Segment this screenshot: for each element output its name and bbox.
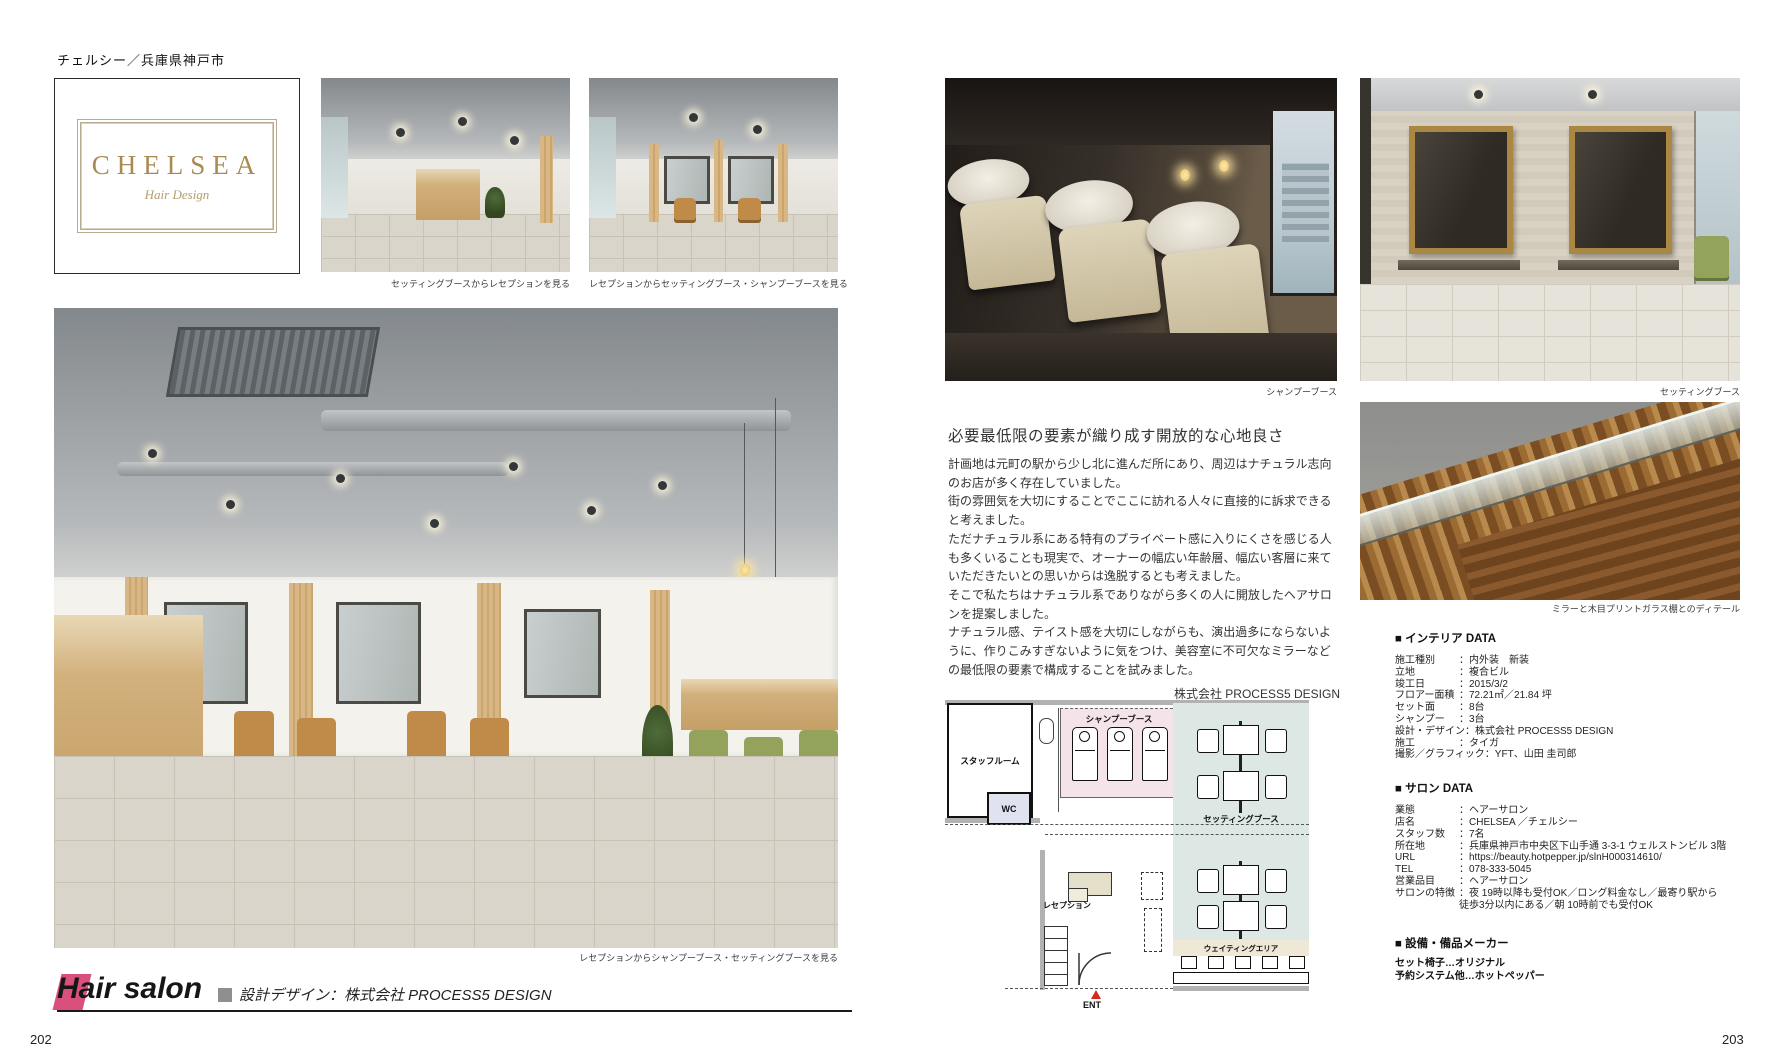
- data-row: 設計・デザイン：株式会社 PROCESS5 DESIGN: [1395, 726, 1772, 738]
- chair-headrest: [1079, 731, 1090, 742]
- plan-display-dashed: [1141, 872, 1163, 900]
- chair-seatline: [1075, 750, 1095, 751]
- plan-dashed-line: [1045, 834, 1309, 835]
- design-credit: 設計デザイン：株式会社 PROCESS5 DESIGN: [218, 984, 552, 1005]
- air-duct: [321, 410, 791, 430]
- data-row: URL：https://beauty.hotpepper.jp/slnH0003…: [1395, 852, 1772, 864]
- spotlight: [458, 117, 467, 126]
- logo-frame: CHELSEA Hair Design: [77, 119, 277, 233]
- data-column: ■ インテリア DATA 施工種別：内外装 新装 立地：複合ビル 竣工日：201…: [1395, 630, 1772, 983]
- data-label: 竣工日: [1395, 679, 1459, 691]
- data-label: シャンプー: [1395, 714, 1459, 726]
- reception-desk: [416, 169, 481, 219]
- data-value: ：CHELSEA ／チェルシー: [1459, 817, 1578, 829]
- wood-column: [714, 140, 724, 221]
- spotlight: [689, 113, 698, 122]
- plan-display-dashed: [1144, 908, 1162, 952]
- plant: [485, 187, 505, 218]
- plan-wc-label: WC: [1002, 804, 1017, 814]
- article-block: 必要最低限の要素が織り成す開放的な心地良さ 計画地は元町の駅から少し北に進んだ所…: [948, 424, 1340, 702]
- data-value: ：https://beauty.hotpepper.jp/slnH0003146…: [1459, 852, 1662, 864]
- article-paragraph: ナチュラル感、テイスト感を大切にしながらも、演出過多にならないように、作りこみす…: [948, 623, 1340, 679]
- caption-detail-photo: ミラーと木目プリントガラス棚とのディテール: [1360, 602, 1740, 615]
- caption-top-right-photo: レセプションからセッティングブース・シャンプーブースを見る: [589, 277, 838, 290]
- data-label: 撮影／グラフィック: [1395, 749, 1485, 761]
- caption-setting-photo: セッティングブース: [1360, 385, 1740, 398]
- makers-section: ■ 設備・備品メーカー セット椅子…オリジナル 予約システム他…ホットペッパー: [1395, 935, 1772, 983]
- data-row: サロンの特徴：夜 19時以降も受付OK／ロング料金なし／最寄り駅から 徒歩3分以…: [1395, 888, 1772, 912]
- caption-shampoo-photo: シャンプーブース: [945, 385, 1337, 398]
- ceiling: [1360, 78, 1740, 111]
- data-label: URL: [1395, 852, 1459, 864]
- pendant-cord: [744, 423, 745, 564]
- data-label: スタッフ数: [1395, 829, 1459, 841]
- shampoo-chair: [1058, 219, 1162, 324]
- data-row: 立地：複合ビル: [1395, 667, 1772, 679]
- plan-shampoo-chair: [1142, 727, 1168, 781]
- caption-main-photo: レセプションからシャンプーブース・セッティングブースを見る: [54, 951, 838, 964]
- data-label: 店名: [1395, 817, 1459, 829]
- styling-chair: [407, 711, 446, 762]
- data-value: ：タイガ: [1459, 738, 1499, 750]
- data-value: ：3台: [1459, 714, 1485, 726]
- data-value: ：72.21㎡／21.84 坪: [1459, 690, 1552, 702]
- data-row: 施工：タイガ: [1395, 738, 1772, 750]
- tile-floor: [1360, 284, 1740, 381]
- spotlight: [753, 125, 762, 134]
- plan-waiting-label: ウェイティングエリア: [1204, 943, 1278, 954]
- data-value: ：7名: [1459, 829, 1485, 841]
- plan-wc: WC: [987, 792, 1031, 825]
- wood-column: [778, 144, 788, 222]
- data-value: ：ヘアーサロン: [1459, 876, 1528, 888]
- wood-table: [681, 679, 838, 730]
- photo-mirror-wood-detail: [1360, 402, 1740, 600]
- green-chair: [1694, 236, 1728, 278]
- data-row: スタッフ数：7名: [1395, 829, 1772, 841]
- plan-waiting-seat: [1181, 956, 1197, 969]
- article-heading: 必要最低限の要素が織り成す開放的な心地良さ: [948, 424, 1340, 446]
- plan-station-table: [1223, 901, 1259, 931]
- data-value: ：兵庫県神戸市中央区下山手通 3-3-1 ウェルストンビル 3階: [1459, 841, 1726, 853]
- plan-waiting-seat: [1289, 956, 1305, 969]
- gold-framed-mirror: [1569, 126, 1672, 253]
- data-label: セット面: [1395, 702, 1459, 714]
- article-paragraph: ただナチュラル系にある特有のプライベート感に入りにくさを感じる人も多くいることも…: [948, 530, 1340, 586]
- wood-column: [540, 136, 552, 223]
- plan-styling-chair: [1197, 869, 1219, 893]
- data-value: ：2015/3/2: [1459, 679, 1508, 691]
- data-value: ：夜 19時以降も受付OK／ロング料金なし／最寄り駅から 徒歩3分以内にある／朝…: [1459, 888, 1717, 912]
- salon-data-heading: ■ サロン DATA: [1395, 780, 1772, 796]
- plan-waiting-seat: [1235, 956, 1251, 969]
- data-row: 業態：ヘアーサロン: [1395, 805, 1772, 817]
- plan-door-arc: [1078, 952, 1112, 986]
- plan-dashed-line-entry: [1005, 988, 1173, 989]
- data-label: 営業品目: [1395, 876, 1459, 888]
- gold-framed-mirror: [1409, 126, 1512, 253]
- floor-plan: スタッフルーム WC シャンプーブース セッティングブース: [945, 700, 1315, 1012]
- styling-chair: [674, 198, 696, 219]
- data-row: 撮影／グラフィック：YFT、山田 圭司郎: [1395, 749, 1772, 761]
- data-row: シャンプー：3台: [1395, 714, 1772, 726]
- article-paragraph: 計画地は元町の駅から少し北に進んだ所にあり、周辺はナチュラル志向のお店が多く存在…: [948, 455, 1340, 492]
- data-value: ：複合ビル: [1459, 667, 1509, 679]
- mirror: [336, 602, 420, 704]
- plan-staff-room-label: スタッフルーム: [960, 755, 1019, 767]
- plan-styling-chair: [1197, 775, 1219, 799]
- data-row: セット面：8台: [1395, 702, 1772, 714]
- plan-sink-nook: [1035, 708, 1059, 812]
- tile-floor: [321, 214, 570, 272]
- data-row: 所在地：兵庫県神戸市中央区下山手通 3-3-1 ウェルストンビル 3階: [1395, 841, 1772, 853]
- plan-setting-booth: セッティングブース: [1173, 703, 1309, 940]
- photo-setting-shampoo-view: [589, 78, 838, 272]
- plan-shampoo-chair: [1107, 727, 1133, 781]
- pendant-bulb: [740, 564, 750, 576]
- plan-styling-chair: [1265, 869, 1287, 893]
- plan-styling-chair: [1265, 729, 1287, 753]
- mirror: [524, 609, 601, 698]
- data-row: 竣工日：2015/3/2: [1395, 679, 1772, 691]
- plan-station-table: [1223, 771, 1259, 801]
- ceiling: [321, 78, 570, 159]
- air-duct: [117, 462, 509, 476]
- plan-sink: [1039, 718, 1054, 744]
- tile-floor: [54, 756, 838, 948]
- data-label: TEL: [1395, 864, 1459, 876]
- counter-shelf: [1398, 260, 1520, 271]
- data-label: 業態: [1395, 805, 1459, 817]
- plan-styling-chair: [1265, 775, 1287, 799]
- styling-chair: [234, 711, 273, 762]
- data-label: 所在地: [1395, 841, 1459, 853]
- article-paragraph: そこで私たちはナチュラル系でありながら多くの人に開放したヘアサロンを提案しました…: [948, 586, 1340, 623]
- plan-dashed-line: [945, 824, 1309, 825]
- styling-chair: [738, 198, 760, 219]
- plan-reception-label: レセプション: [1043, 900, 1091, 911]
- mirror: [664, 156, 710, 205]
- counter-shelf: [1558, 260, 1680, 271]
- salon-logo-panel: CHELSEA Hair Design: [54, 78, 300, 274]
- data-label: 立地: [1395, 667, 1459, 679]
- data-row: 営業品目：ヘアーサロン: [1395, 876, 1772, 888]
- plan-entrance-label: ENT: [1083, 1000, 1101, 1010]
- logo-subtitle: Hair Design: [145, 187, 210, 203]
- salon-location-kicker: チェルシー／兵庫県神戸市: [57, 50, 225, 69]
- photo-shampoo-booth: [945, 78, 1337, 381]
- chair-seatline: [1145, 750, 1165, 751]
- dark-floor: [945, 333, 1337, 381]
- data-label: サロンの特徴: [1395, 888, 1459, 912]
- data-row: 施工種別：内外装 新装: [1395, 655, 1772, 667]
- plan-wall-bottom-right: [1173, 986, 1309, 991]
- maker-line: セット椅子…オリジナル: [1395, 958, 1772, 971]
- window: [321, 117, 348, 218]
- category-title: Hair salon: [57, 972, 202, 1006]
- window: [589, 117, 616, 218]
- plan-station-table: [1223, 865, 1259, 895]
- plan-styling-chair: [1197, 905, 1219, 929]
- chair-headrest: [1114, 731, 1125, 742]
- building-view: [1282, 163, 1329, 242]
- data-label: フロアー面積: [1395, 690, 1459, 702]
- data-value: ：ヘアーサロン: [1459, 805, 1528, 817]
- plan-styling-chair: [1265, 905, 1287, 929]
- design-credit-text: 設計デザイン：株式会社 PROCESS5 DESIGN: [239, 984, 552, 1005]
- plan-styling-chair: [1197, 729, 1219, 753]
- tile-floor: [589, 214, 838, 272]
- chair-seatline: [1110, 750, 1130, 751]
- page-number-right: 203: [1722, 1032, 1744, 1047]
- data-row: 店名：CHELSEA ／チェルシー: [1395, 817, 1772, 829]
- data-label: 施工: [1395, 738, 1459, 750]
- interior-data-heading: ■ インテリア DATA: [1395, 630, 1772, 646]
- dark-column: [1360, 78, 1371, 284]
- photo-main-interior: [54, 308, 838, 948]
- makers-heading: ■ 設備・備品メーカー: [1395, 935, 1772, 951]
- logo-title: CHELSEA: [92, 150, 263, 181]
- spotlight: [658, 481, 667, 490]
- article-paragraph: 街の雰囲気を大切にすることでここに訪れる人々に直接的に訴求できると考えました。: [948, 492, 1340, 529]
- data-value: ：078-333-5045: [1459, 864, 1531, 876]
- credit-square-icon: [218, 988, 232, 1002]
- plan-waiting-seat: [1208, 956, 1224, 969]
- plan-waiting-area: ウェイティングエリア: [1173, 940, 1309, 956]
- photo-setting-booth: [1360, 78, 1740, 381]
- plan-shampoo-chair: [1072, 727, 1098, 781]
- wood-column: [649, 144, 659, 222]
- spotlight: [148, 449, 157, 458]
- chair-headrest: [1149, 731, 1160, 742]
- data-value: ：YFT、山田 圭司郎: [1485, 749, 1577, 761]
- data-row: フロアー面積：72.21㎡／21.84 坪: [1395, 690, 1772, 702]
- plan-waiting-bench: [1173, 972, 1309, 984]
- maker-line: 予約システム他…ホットペッパー: [1395, 971, 1772, 984]
- plan-waiting-seat: [1262, 956, 1278, 969]
- data-value: ：株式会社 PROCESS5 DESIGN: [1465, 726, 1613, 738]
- shampoo-chair: [959, 194, 1056, 290]
- pendant-cord: [775, 398, 776, 590]
- data-label: 施工種別: [1395, 655, 1459, 667]
- concrete-ceiling: [54, 308, 838, 577]
- data-value: ：内外装 新装: [1459, 655, 1529, 667]
- photo-reception-view: [321, 78, 570, 272]
- caption-top-center-photo: セッティングブースからレセプションを見る: [321, 277, 570, 290]
- plan-station-table: [1223, 725, 1259, 755]
- data-label: 設計・デザイン: [1395, 726, 1465, 738]
- page-number-left: 202: [30, 1032, 52, 1047]
- mirror: [728, 156, 774, 205]
- entrance-arrow-icon: [1091, 990, 1101, 999]
- data-row: TEL：078-333-5045: [1395, 864, 1772, 876]
- spotlight: [509, 462, 518, 471]
- data-value: ：8台: [1459, 702, 1485, 714]
- plan-shampoo-booth: シャンプーブース: [1060, 708, 1178, 798]
- ac-vent: [165, 327, 379, 397]
- plan-stairs: [1044, 926, 1068, 986]
- plan-shampoo-label: シャンプーブース: [1061, 713, 1177, 725]
- footer-rule: [57, 1010, 852, 1012]
- magazine-spread: チェルシー／兵庫県神戸市 CHELSEA Hair Design: [0, 0, 1772, 1063]
